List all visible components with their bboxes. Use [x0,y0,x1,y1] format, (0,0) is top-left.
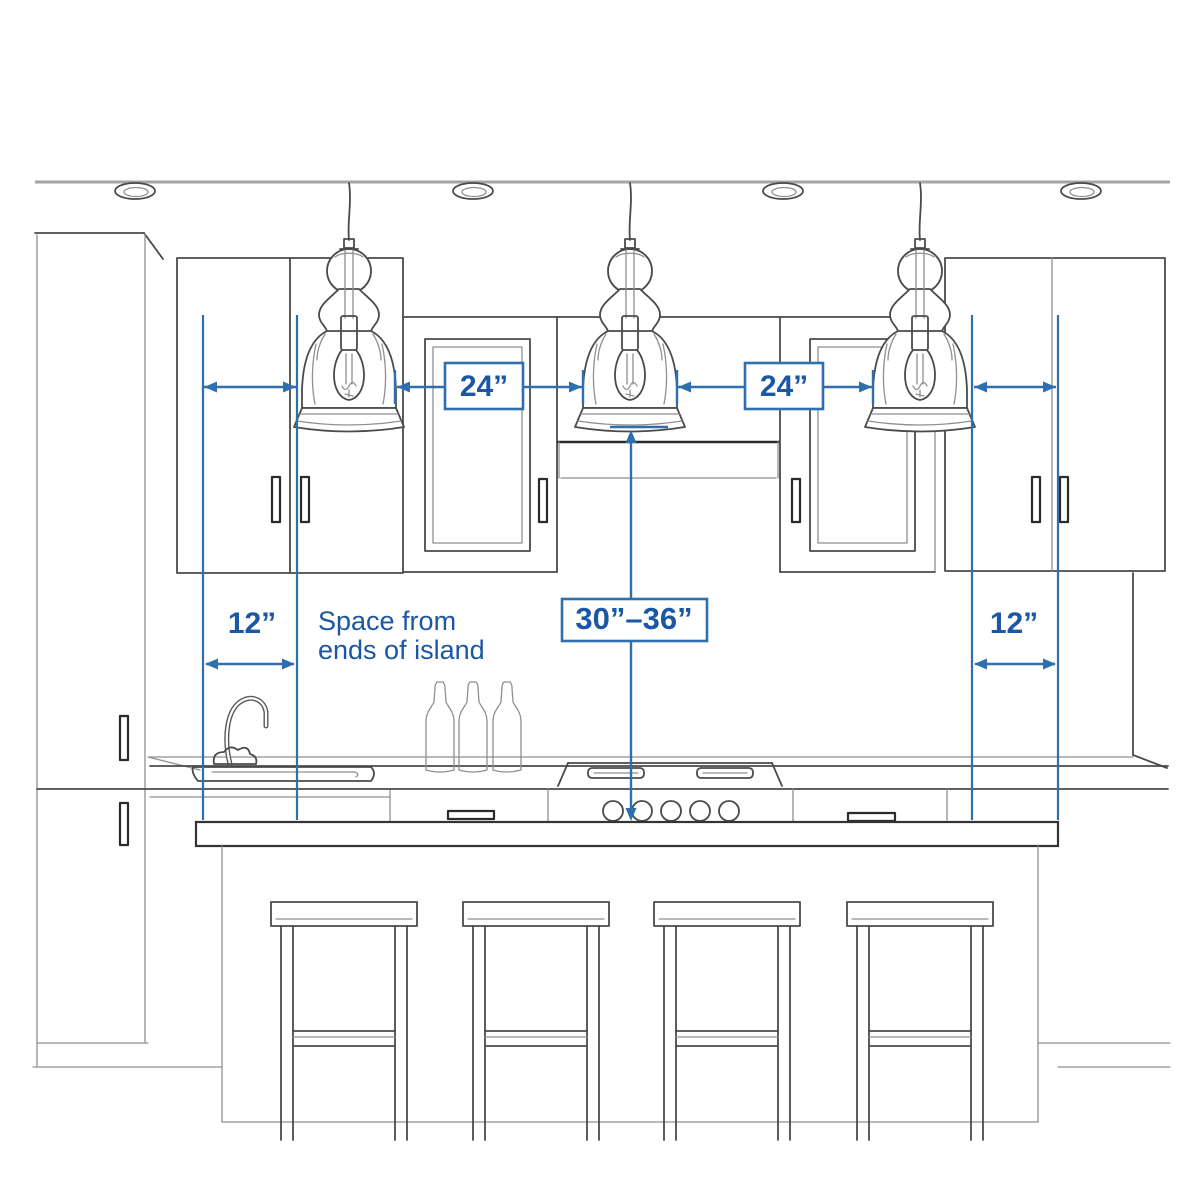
bar-stool [847,902,993,1140]
end-space-right-label: 12” [990,607,1038,640]
bar-stool [463,902,609,1140]
pendant-light-icon [865,183,975,432]
dimension-label-24-right: 24” [745,363,823,409]
island [196,822,1058,1122]
diagram-canvas: 24” 24” 12” 12” Space from ends of islan… [0,0,1200,1200]
bar-stools [271,902,993,1140]
ceiling [35,182,1170,199]
kitchen-pendant-spacing-diagram: 24” 24” 12” 12” Space from ends of islan… [0,0,1200,1200]
recessed-light-icon [115,183,155,199]
pendant-gap-right-label: 24” [760,370,808,403]
bar-stool [271,902,417,1140]
pendant-gap-left-label: 24” [460,370,508,403]
note-line-1: Space from [318,606,456,636]
recessed-light-icon [1061,183,1101,199]
bar-stool [654,902,800,1140]
drawer-handle [848,813,895,821]
note-space-from-ends: Space from ends of island [318,606,485,665]
note-line-2: ends of island [318,635,485,665]
pendant-light-icon [575,183,685,432]
cooktop [558,763,782,821]
floor-lines [33,1043,1170,1067]
height-range-label: 30”–36” [575,601,692,636]
recessed-light-icon [453,183,493,199]
drawer-handle [448,811,494,819]
wine-bottles [426,682,521,772]
pendant-light-icon [294,183,404,432]
right-wall [1133,573,1167,768]
end-space-left-label: 12” [228,607,276,640]
left-wall-and-tall-cabinets [35,233,163,1066]
control-knobs [603,801,739,821]
kitchen-sink [193,698,374,781]
dimension-label-30-36: 30”–36” [562,599,707,641]
recessed-light-icon [763,183,803,199]
dimension-label-24-left: 24” [445,363,523,409]
faucet-icon [214,698,266,764]
